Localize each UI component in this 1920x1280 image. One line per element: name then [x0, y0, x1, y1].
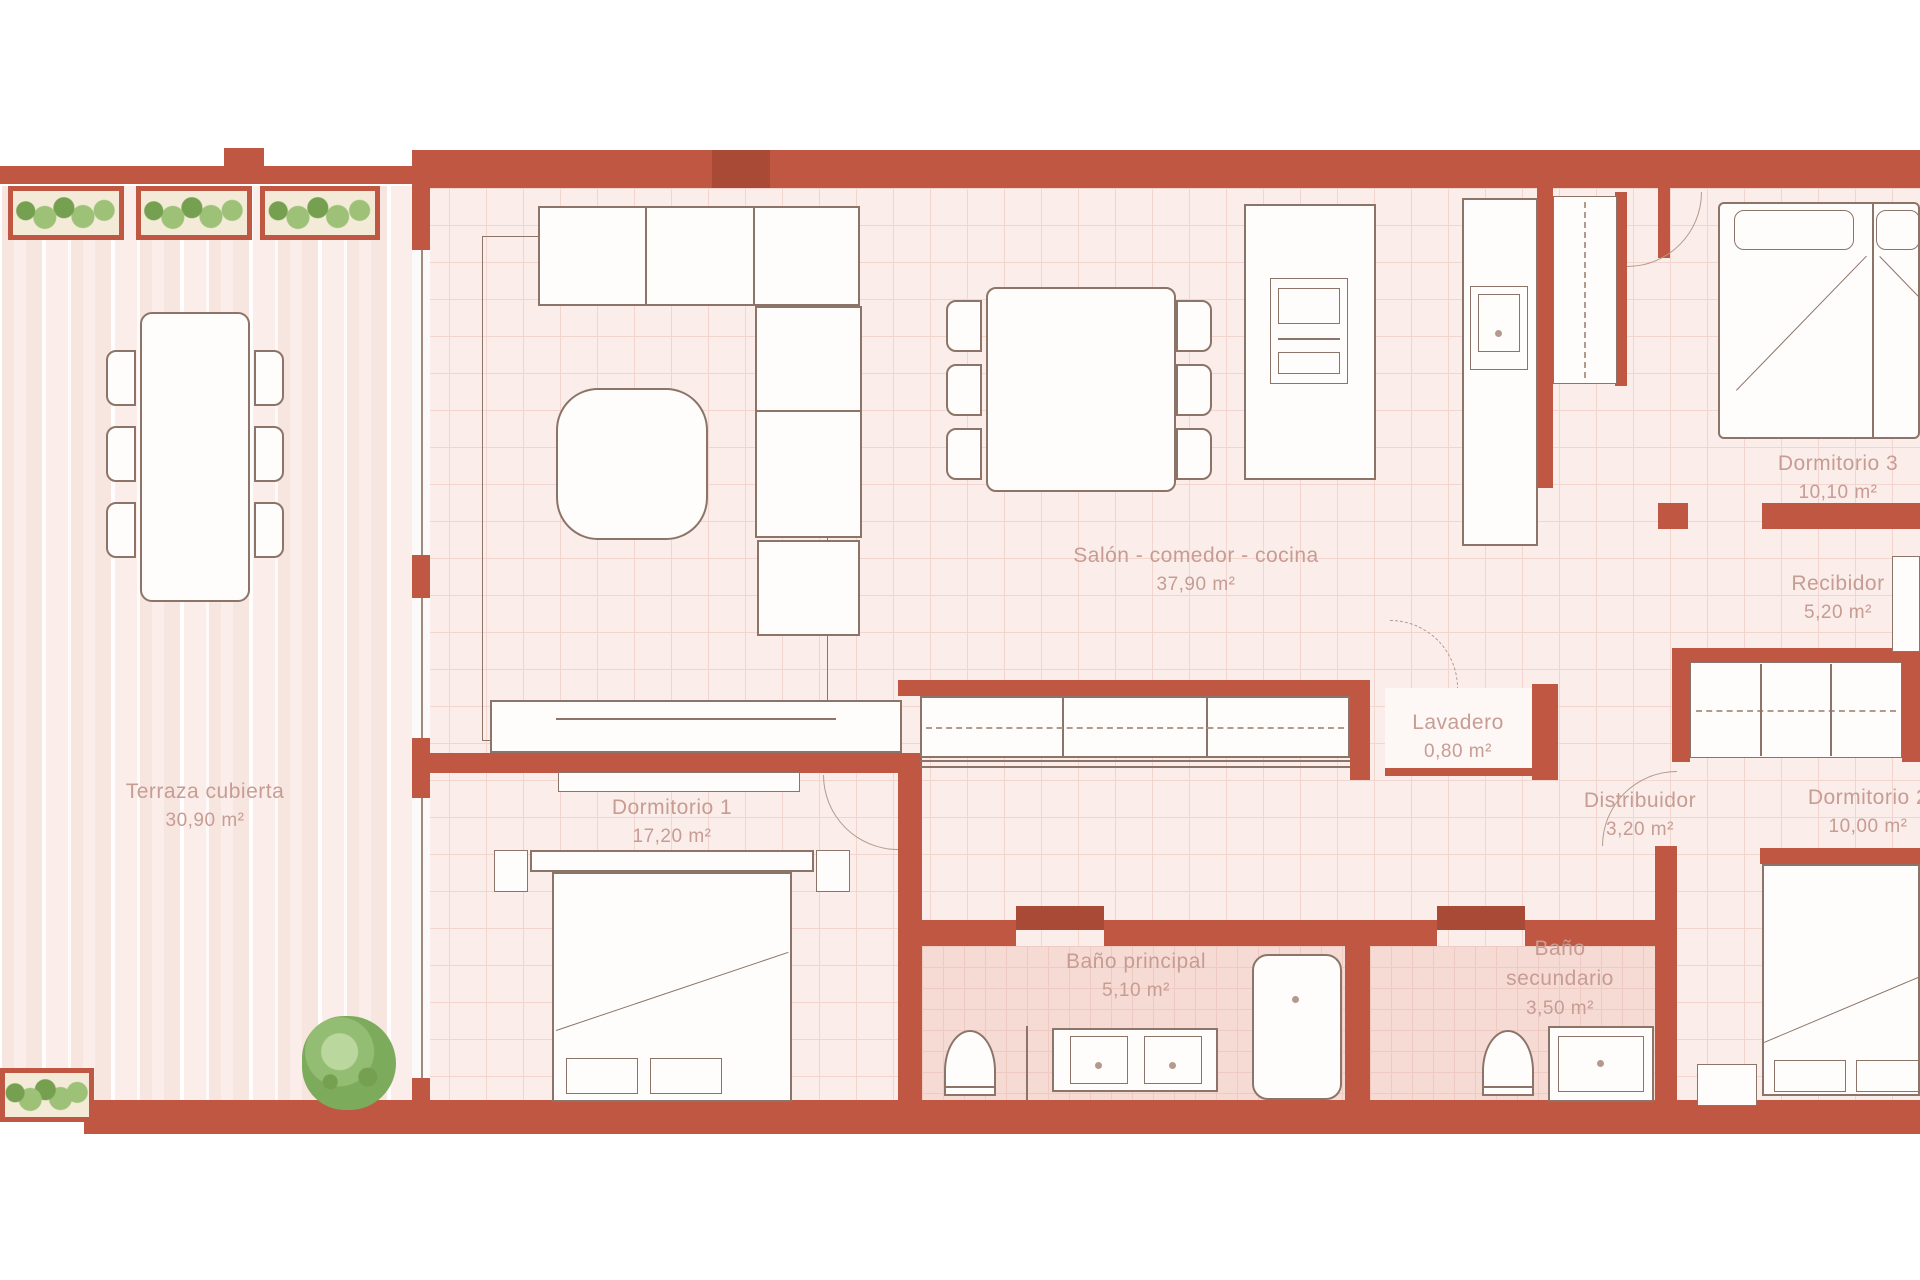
wall-bath2-dorm2: [1655, 846, 1677, 1102]
room-name: Baño principal: [1016, 947, 1256, 977]
sideboard-detail-line: [556, 718, 836, 720]
wall-bath2-top-left: [1370, 920, 1437, 946]
window-living-a: [412, 250, 430, 555]
wall-dorm1-bath: [898, 753, 922, 1102]
room-area: 0,80 m²: [1383, 738, 1533, 766]
room-label-recibidor: Recibidor 5,20 m²: [1738, 569, 1920, 627]
room-label-distribuidor: Distribuidor 3,20 m²: [1545, 786, 1735, 844]
room-name: Dormitorio 3: [1728, 449, 1920, 479]
dining-chair: [1176, 300, 1212, 352]
room-name: Recibidor: [1738, 569, 1920, 599]
dorm1-footbox: [566, 1058, 638, 1094]
terrace-chair: [254, 502, 284, 558]
wall-laundry-right: [1532, 684, 1558, 780]
room-label-salon: Salón - comedor - cocina 37,90 m²: [986, 541, 1406, 599]
bath1-sink: [1144, 1036, 1202, 1084]
bath2-sliding-door: [1437, 906, 1525, 930]
tub-drain: [1292, 996, 1299, 1003]
room-area: 10,00 m²: [1763, 813, 1920, 841]
dorm3-pillow: [1876, 210, 1920, 250]
wall-pillar-top: [712, 150, 770, 188]
bathtub: [1252, 954, 1342, 1100]
dorm1-dresser: [558, 772, 800, 792]
sofa-back-section: [538, 206, 860, 306]
tv-sideboard: [490, 700, 902, 753]
hall-closet-divider: [1830, 664, 1832, 756]
room-label-dorm3: Dormitorio 3 10,10 m²: [1728, 449, 1920, 507]
kitchen-counter: [1462, 198, 1538, 546]
room-area: 17,20 m²: [542, 823, 802, 851]
kitchen-sink-basin: [1478, 294, 1520, 352]
wardrobe-base-line: [920, 760, 1350, 762]
dorm1-footbox: [650, 1058, 722, 1094]
cooktop-detail: [1278, 288, 1340, 324]
wardrobe-base-line: [920, 766, 1350, 768]
hall-closet-rail: [1696, 710, 1896, 712]
room-label-lavadero: Lavadero 0,80 m²: [1383, 708, 1533, 766]
dining-chair: [946, 428, 982, 480]
room-area: 37,90 m²: [986, 571, 1406, 599]
wall-wardrobe-right: [1350, 680, 1370, 780]
dorm2-bench: [1697, 1064, 1757, 1106]
sofa-cushion-divider: [757, 410, 860, 412]
hall-closet-divider: [1760, 664, 1762, 756]
terrace-chair: [106, 350, 136, 406]
bath1-sink: [1070, 1036, 1128, 1084]
wall-wardrobe-top: [898, 680, 1368, 696]
window-living-b: [412, 598, 430, 738]
dorm2-pillow: [1856, 1060, 1920, 1092]
planter-box-4: [0, 1068, 94, 1122]
room-name: Dormitorio 2: [1763, 783, 1920, 813]
sofa-cushion-divider: [645, 208, 647, 304]
shower-drain: [1597, 1060, 1604, 1067]
planter-box-1: [8, 186, 124, 240]
dining-chair: [946, 300, 982, 352]
room-name: Terraza cubierta: [65, 777, 345, 807]
room-name: Dormitorio 1: [542, 793, 802, 823]
wall-pillar-terrace: [224, 148, 264, 184]
terrace-chair: [254, 426, 284, 482]
wall-hall-closet-left: [1672, 648, 1690, 762]
wall-top-terrace: [0, 166, 414, 184]
room-area: 5,10 m²: [1016, 977, 1256, 1005]
room-area: 3,50 m²: [1495, 995, 1625, 1023]
wall-bath1-top-right: [1104, 920, 1345, 946]
room-label-terraza: Terraza cubierta 30,90 m²: [65, 777, 345, 835]
dining-chair: [1176, 364, 1212, 416]
wall-kitchen-right: [1537, 188, 1553, 488]
room-label-bano-secundario: Baño secundario 3,50 m²: [1495, 934, 1625, 1022]
floor-plan: Terraza cubierta 30,90 m² Salón - comedo…: [0, 0, 1920, 1280]
wall-hall-closet-right: [1902, 648, 1920, 762]
cooktop-detail: [1278, 352, 1340, 374]
room-label-bano-principal: Baño principal 5,10 m²: [1016, 947, 1256, 1005]
sofa-chaise: [757, 540, 860, 636]
terrace-chair: [106, 502, 136, 558]
wall-living-dorm1: [412, 753, 910, 773]
planter-box-3: [260, 186, 380, 240]
cooktop-line: [1278, 338, 1340, 340]
sofa-side-section: [755, 306, 862, 538]
dorm3-pillow: [1734, 210, 1854, 250]
sink-drain: [1495, 330, 1502, 337]
bath1-sliding-door: [1016, 906, 1104, 930]
room-label-dorm1: Dormitorio 1 17,20 m²: [542, 793, 802, 851]
wall-hall-closet-top: [1672, 648, 1920, 662]
wall-bath1-top-left: [920, 920, 1016, 946]
wall-laundry-bottom: [1385, 768, 1535, 776]
terrace-chair: [106, 426, 136, 482]
planter-box-2: [136, 186, 252, 240]
wall-bath1-right: [1345, 920, 1370, 1102]
sofa-cushion-divider: [753, 208, 755, 304]
wall-dorm2-head: [1760, 848, 1920, 864]
wall-dorm3-bottom-a: [1658, 503, 1688, 529]
room-name: Baño secundario: [1495, 934, 1625, 995]
room-area: 10,10 m²: [1728, 479, 1920, 507]
terrace-dining-table: [140, 312, 250, 602]
room-name: Distribuidor: [1545, 786, 1735, 816]
wardrobe-rail: [926, 727, 1344, 729]
dining-chair: [1176, 428, 1212, 480]
dorm3-bed-center-line: [1872, 204, 1874, 437]
sink-drain: [1095, 1062, 1102, 1069]
terrace-chair: [254, 350, 284, 406]
dorm2-pillow: [1774, 1060, 1846, 1092]
room-name: Salón - comedor - cocina: [986, 541, 1406, 571]
window-dorm1: [412, 798, 430, 1078]
dining-table: [986, 287, 1176, 492]
sink-drain: [1169, 1062, 1176, 1069]
dining-chair: [946, 364, 982, 416]
room-area: 30,90 m²: [65, 807, 345, 835]
dorm1-nightstand: [494, 850, 528, 892]
coffee-table: [556, 388, 708, 540]
room-area: 5,20 m²: [1738, 599, 1920, 627]
bath1-partition-line: [1026, 1026, 1028, 1100]
bush-plant: [302, 1016, 396, 1110]
room-label-dorm2: Dormitorio 2 10,00 m²: [1763, 783, 1920, 841]
wall-top-main: [412, 150, 1920, 188]
room-name: Lavadero: [1383, 708, 1533, 738]
closet-rail-dashes: [1584, 202, 1586, 378]
room-area: 3,20 m²: [1545, 816, 1735, 844]
dorm1-headboard: [530, 850, 814, 872]
dorm1-nightstand: [816, 850, 850, 892]
